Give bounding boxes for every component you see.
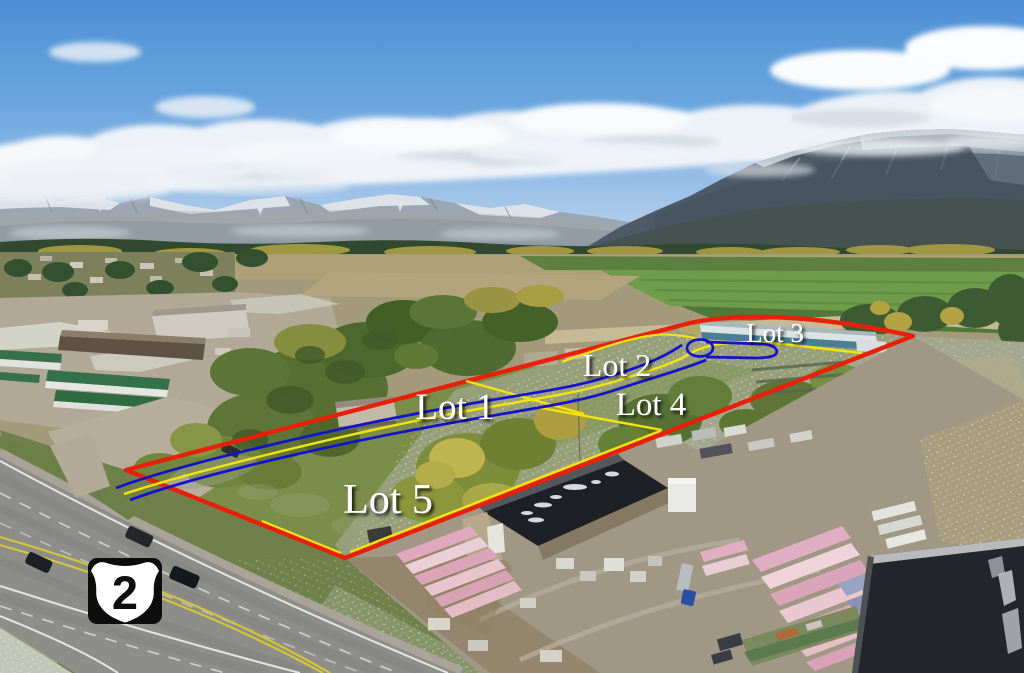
- svg-text:Lot 3: Lot 3: [746, 318, 804, 348]
- svg-text:Lot 2: Lot 2: [583, 347, 651, 383]
- svg-text:Lot 4: Lot 4: [616, 387, 687, 423]
- svg-text:Lot 1: Lot 1: [415, 387, 494, 428]
- svg-text:Lot 5: Lot 5: [343, 477, 433, 523]
- svg-text:2: 2: [112, 566, 138, 619]
